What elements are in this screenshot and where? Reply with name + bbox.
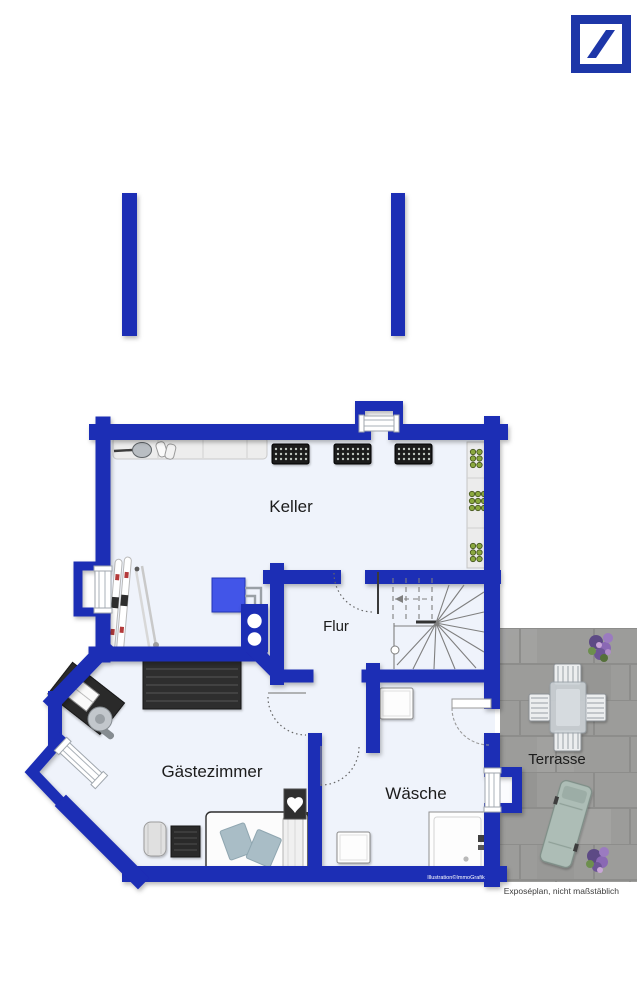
waesche-label: Wäsche [385, 784, 446, 803]
washing-machine-top [380, 688, 413, 719]
upper-wall-bars [122, 193, 405, 336]
terrace-table-inner [556, 689, 580, 726]
storage-crates [272, 444, 432, 464]
window-right-bay [484, 768, 501, 812]
stair-newel [391, 646, 399, 654]
gaestezimmer-label: Gästezimmer [161, 762, 262, 781]
side-table [171, 826, 200, 857]
furnace [212, 578, 245, 612]
scale-disclaimer: Exposéplan, nicht maßstäblich [504, 886, 620, 896]
terrace-chair-left [529, 694, 550, 721]
floorplan-drawing: Terrasse [0, 0, 642, 1000]
stool [144, 822, 166, 856]
crate [395, 444, 432, 464]
terrace-chair-right [585, 694, 606, 721]
wall-bar-right [391, 193, 405, 336]
chimney-flue [247, 614, 261, 628]
wall-bar-left [122, 193, 137, 336]
keller-label: Keller [269, 497, 313, 516]
window-top-lightwell [359, 415, 399, 432]
sideboard [143, 661, 241, 709]
crate [334, 444, 371, 464]
chimney-flue [248, 632, 262, 646]
terrace-area: Terrasse [500, 628, 637, 882]
keller-shelf [113, 437, 267, 460]
drain-icon [463, 856, 468, 861]
floorplan-page: Terrasse [0, 0, 642, 1000]
heart-decor [284, 789, 306, 819]
crate [272, 444, 309, 464]
washing-machine-bottom [337, 832, 370, 863]
illustration-credit: Illustration©ImmoGrafik [427, 874, 485, 881]
flur-label: Flur [323, 618, 349, 635]
wine-rack [467, 442, 487, 568]
window-left [94, 566, 112, 613]
terrace-label: Terrasse [528, 751, 586, 768]
bed-pillow-head [283, 816, 303, 872]
deutsche-bank-logo-icon [571, 15, 631, 73]
